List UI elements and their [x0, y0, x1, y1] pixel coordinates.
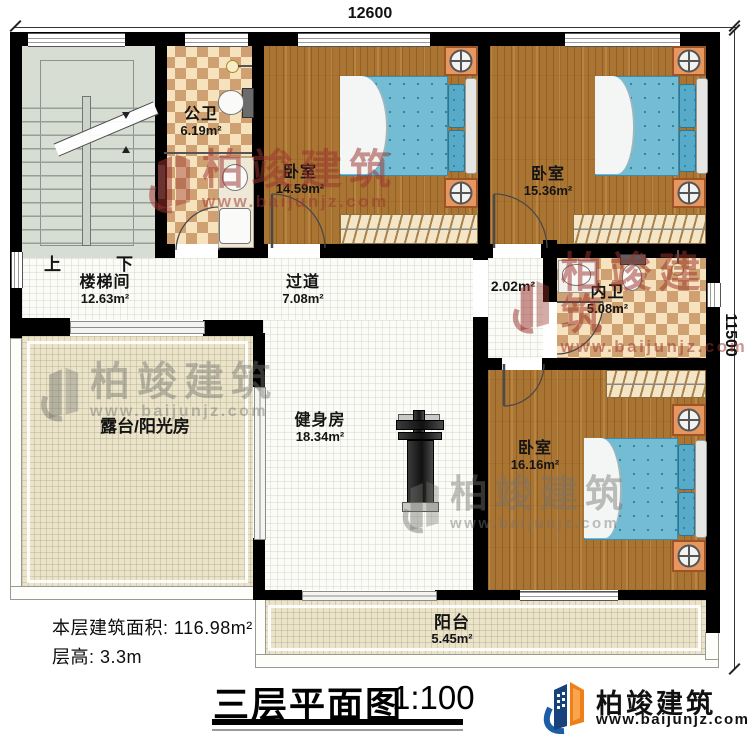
scale-label: 1:100: [392, 679, 475, 717]
window-north-stairwell: [28, 33, 125, 47]
terrace-railing-south: [10, 586, 257, 600]
balcony-railing-south: [255, 654, 719, 668]
sliding-door-terrace-gym: [254, 387, 266, 540]
room-label-public-bath: 公卫 6.19m²: [160, 106, 242, 138]
floor-height-note: 层高: 3.3m: [52, 643, 142, 669]
lamp-icon: [678, 545, 701, 568]
gym-bench-icon: [407, 440, 434, 506]
pillow: [448, 130, 465, 172]
wall-ensuite-south: [542, 358, 706, 370]
window-east-ensuite: [707, 283, 721, 307]
stairs-arrow-icon: [122, 146, 130, 153]
building-logo-icon: [540, 678, 592, 734]
wall-west: [10, 32, 22, 338]
door-bedroom3: [502, 362, 546, 408]
radiator-icon: [158, 165, 165, 199]
nightstand: [672, 46, 706, 76]
bath-divider: [164, 152, 252, 154]
wall-seg: [618, 590, 706, 600]
sliding-door-terrace-hallway: [70, 321, 205, 334]
stairs-stringer: [82, 96, 91, 246]
balcony-railing-west: [255, 598, 266, 660]
wall-east: [706, 32, 720, 633]
shower-arm: [677, 250, 679, 264]
title-underline: [212, 719, 463, 725]
sink-icon: [562, 264, 591, 286]
gym-bench-icon: [398, 432, 442, 440]
wall-seg: [253, 333, 265, 387]
vestibule-floor: [488, 258, 543, 358]
terrace-border-line: [27, 341, 248, 583]
sink-icon: [222, 164, 248, 191]
pillow: [678, 492, 695, 536]
gym-bench-icon: [396, 420, 444, 430]
wall-seg: [10, 318, 70, 336]
window-north-bedroom1: [298, 33, 430, 47]
window-north-publicbath: [185, 33, 248, 47]
room-label-bedroom3: 卧室 16.16m²: [495, 440, 575, 472]
dimension-line-top: [14, 27, 736, 28]
wardrobe: [573, 214, 706, 244]
balcony-railing-east: [705, 632, 719, 660]
room-label-gym: 健身房 18.34m²: [282, 412, 358, 444]
sliding-door-gym-balcony: [302, 591, 437, 601]
pillow: [679, 130, 696, 172]
pillow: [678, 444, 695, 490]
gym-bench-icon: [402, 502, 439, 512]
shower-icon: [671, 263, 684, 276]
lamp-icon: [678, 409, 701, 432]
room-label-hallway: 过道 7.08m²: [258, 274, 348, 306]
window-north-bedroom2: [565, 33, 680, 47]
washer-icon: [219, 208, 251, 244]
door-public-bath: [175, 205, 221, 253]
room-label-vestibule: 2.02m²: [478, 279, 548, 295]
room-label-bedroom1: 卧室 14.59m²: [255, 164, 345, 196]
terrace-floor: [22, 336, 253, 588]
gym-floor: [263, 320, 473, 590]
bed-headboard: [696, 78, 708, 174]
room-label-terrace: 露台/阳光房: [87, 417, 203, 436]
lamp-icon: [450, 182, 473, 205]
nightstand: [672, 404, 706, 436]
stairs-down-label: 下: [116, 250, 133, 275]
pillow: [448, 84, 465, 128]
nightstand: [444, 178, 478, 208]
brand-website: www.baijunjz.com: [596, 711, 749, 728]
terrace-railing-west: [10, 338, 22, 590]
door-bedroom1: [270, 194, 326, 250]
wardrobe: [340, 214, 478, 244]
window-west-hallway: [11, 252, 23, 288]
nightstand: [672, 540, 706, 572]
wall-seg: [320, 244, 473, 258]
wall-seg: [488, 358, 502, 370]
window-south-bedroom3: [520, 591, 618, 601]
title-underline-thin: [212, 729, 463, 731]
stairs-arrow-icon: [122, 112, 130, 119]
wall-bedroom3-west: [473, 358, 488, 600]
floor-plan: 上 下 公卫 6.19m²: [0, 0, 750, 743]
wall-seg: [435, 590, 520, 600]
floor-area-note: 本层建筑面积: 116.98m²: [52, 614, 253, 640]
lamp-icon: [678, 182, 701, 205]
nightstand: [672, 178, 706, 208]
room-label-ensuite-bath: 内卫 5.08m²: [570, 284, 645, 316]
pillow: [679, 84, 696, 128]
dimension-width: 12600: [330, 5, 410, 23]
door-bedroom2: [492, 194, 548, 250]
wall-bedroom1-bedroom2: [478, 32, 490, 244]
bed-headboard: [695, 440, 707, 538]
lamp-icon: [450, 50, 473, 73]
shower-arm: [238, 65, 252, 67]
room-label-balcony: 阳台 5.45m²: [407, 613, 497, 647]
wall-stairwell-east: [155, 32, 167, 258]
dimension-height: 11500: [721, 305, 739, 365]
wardrobe: [606, 370, 706, 398]
nightstand: [444, 46, 478, 76]
wall-seg: [155, 244, 175, 258]
stairs-up-label: 上: [44, 250, 61, 275]
wall-seg: [255, 590, 302, 600]
room-label-stairwell: 楼梯间 12.63m²: [55, 274, 155, 306]
bed-headboard: [465, 78, 477, 174]
lamp-icon: [678, 50, 701, 73]
dimension-tick: [9, 20, 21, 32]
room-label-bedroom2: 卧室 15.36m²: [503, 166, 593, 198]
